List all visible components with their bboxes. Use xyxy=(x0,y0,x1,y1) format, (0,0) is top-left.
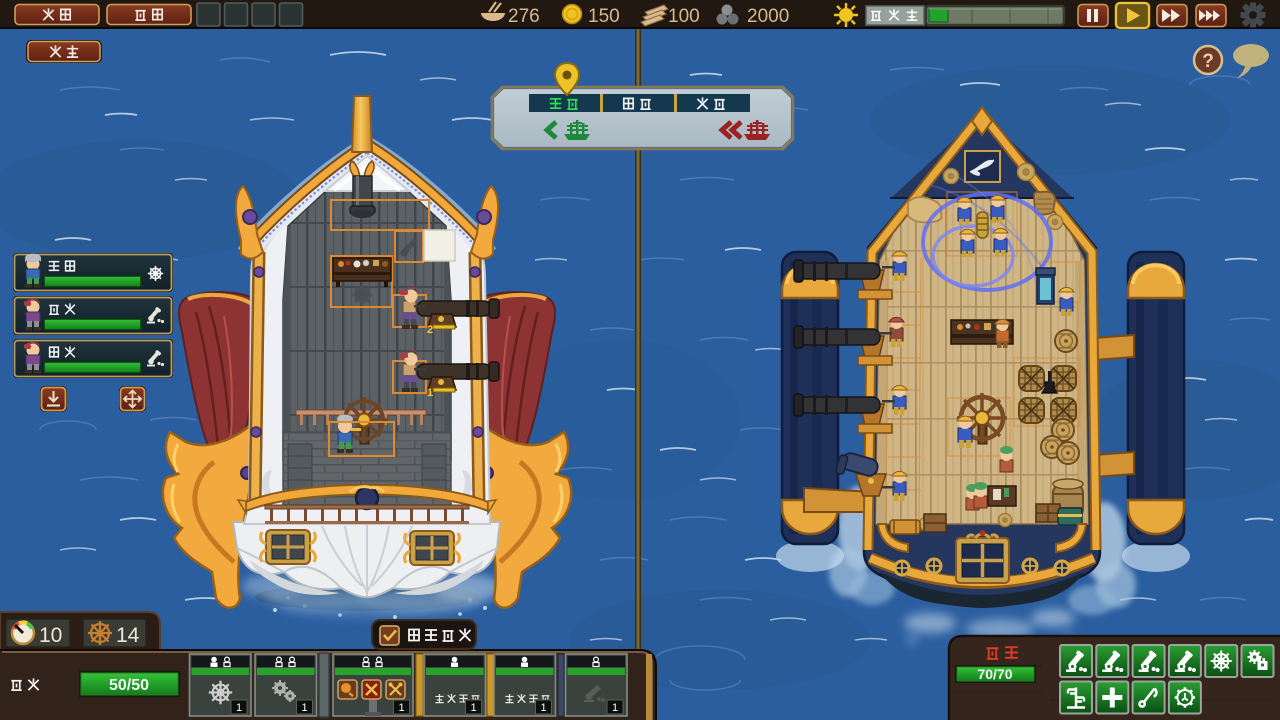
svg-text:150: 150 xyxy=(588,6,620,27)
svg-text:1: 1 xyxy=(301,702,307,714)
svg-text:276: 276 xyxy=(508,6,540,27)
svg-text:1: 1 xyxy=(398,702,404,714)
svg-text:1: 1 xyxy=(612,702,618,714)
svg-text:70/70: 70/70 xyxy=(977,666,1012,682)
svg-text:1: 1 xyxy=(540,702,546,714)
svg-text:2000: 2000 xyxy=(747,6,789,27)
svg-text:1: 1 xyxy=(427,387,433,399)
svg-text:100: 100 xyxy=(668,6,700,27)
svg-text:10: 10 xyxy=(39,624,62,647)
svg-text:50/50: 50/50 xyxy=(109,677,149,694)
svg-text:14: 14 xyxy=(116,624,140,647)
svg-text:1: 1 xyxy=(236,702,242,714)
svg-text:1: 1 xyxy=(470,702,476,714)
svg-text:2: 2 xyxy=(427,324,433,336)
svg-text:?: ? xyxy=(1202,51,1214,72)
